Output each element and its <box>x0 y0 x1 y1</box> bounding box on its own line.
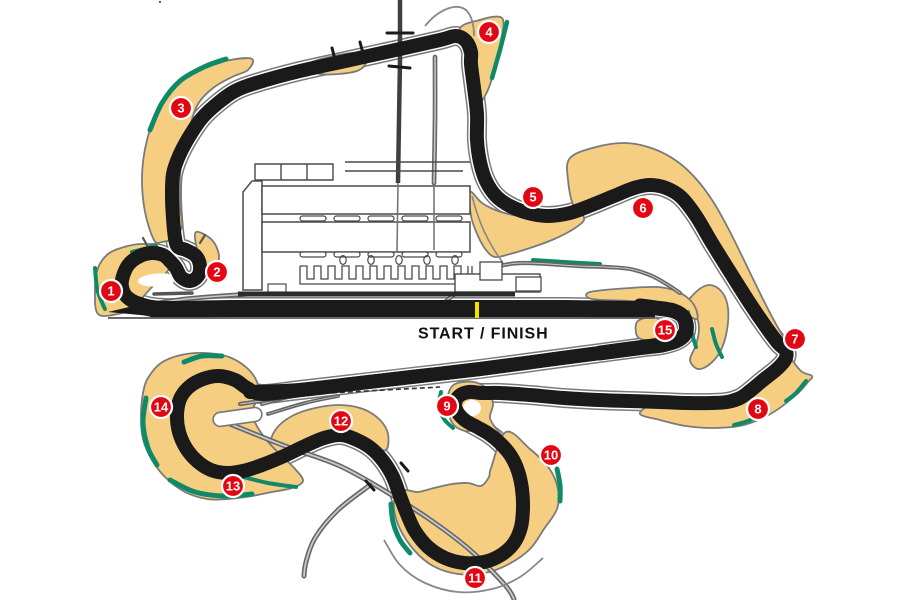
svg-text:9: 9 <box>443 399 450 414</box>
svg-text:14: 14 <box>154 400 169 415</box>
svg-text:5: 5 <box>529 190 536 205</box>
svg-text:10: 10 <box>544 448 558 463</box>
svg-text:13: 13 <box>226 479 240 494</box>
svg-text:1: 1 <box>107 284 114 299</box>
svg-text:7: 7 <box>791 332 798 347</box>
svg-text:6: 6 <box>639 201 646 216</box>
svg-text:4: 4 <box>485 25 493 40</box>
svg-text:8: 8 <box>754 402 761 417</box>
svg-text:2: 2 <box>213 265 220 280</box>
svg-text:11: 11 <box>468 571 482 586</box>
svg-text:3: 3 <box>177 101 184 116</box>
svg-text:START / FINISH: START / FINISH <box>418 326 549 343</box>
svg-text:12: 12 <box>334 414 348 429</box>
svg-text:15: 15 <box>658 323 672 338</box>
